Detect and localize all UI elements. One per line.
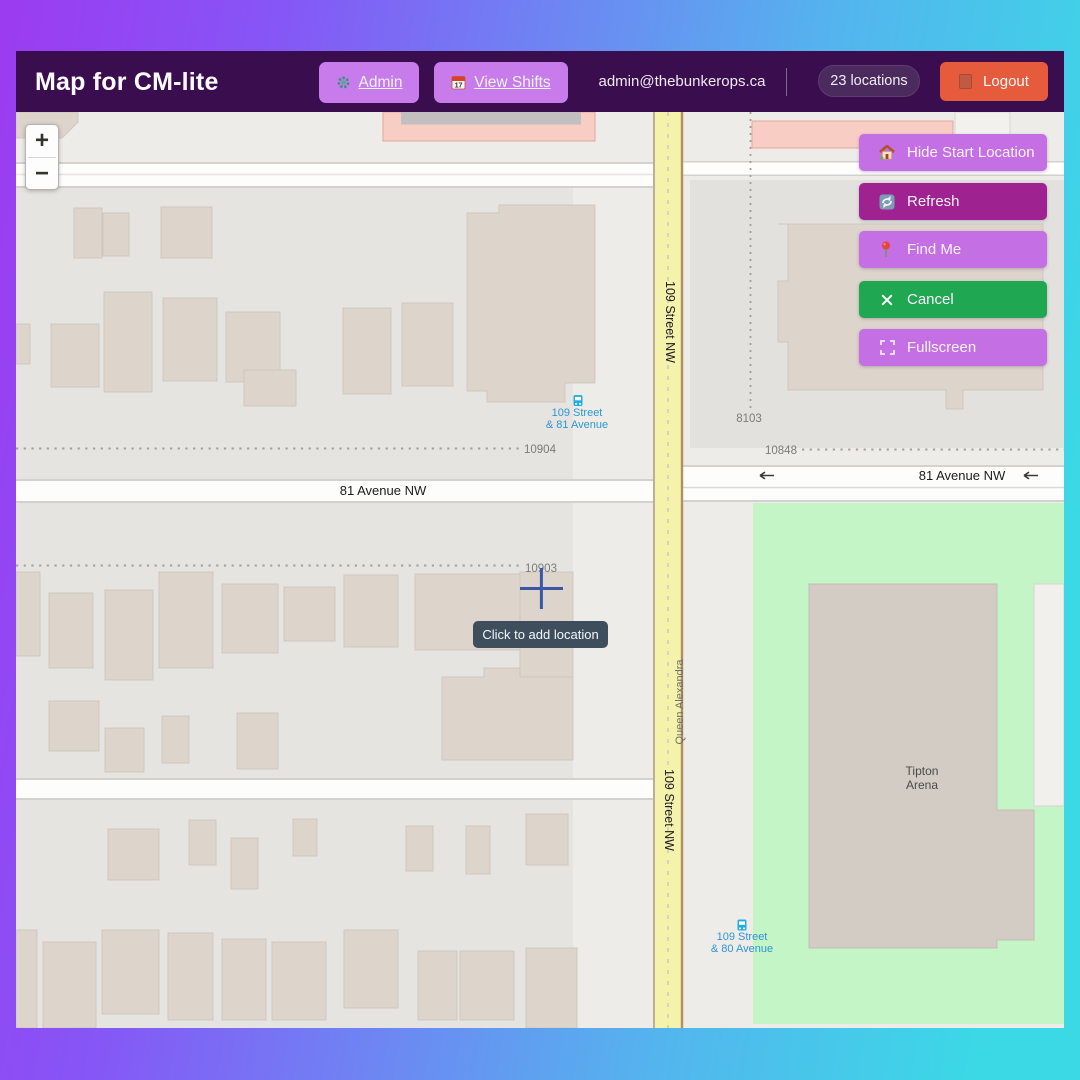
svg-text:Arena: Arena (906, 778, 938, 792)
svg-text:10904: 10904 (524, 444, 557, 456)
svg-text:& 80 Avenue: & 80 Avenue (711, 943, 773, 955)
svg-text:109 Street: 109 Street (552, 407, 603, 419)
svg-text:10848: 10848 (765, 445, 797, 457)
svg-text:109 Street NW: 109 Street NW (663, 281, 677, 363)
svg-text:Tipton: Tipton (906, 764, 939, 778)
svg-text:8103: 8103 (736, 413, 762, 425)
svg-text:81 Avenue NW: 81 Avenue NW (340, 483, 427, 498)
svg-text:109 Street: 109 Street (717, 931, 768, 943)
svg-text:17: 17 (455, 83, 463, 90)
svg-text:& 81 Avenue: & 81 Avenue (546, 419, 608, 431)
svg-text:109 Street NW: 109 Street NW (662, 769, 676, 851)
svg-text:Queen Alexandra: Queen Alexandra (674, 659, 686, 745)
svg-text:81 Avenue NW: 81 Avenue NW (919, 468, 1006, 483)
